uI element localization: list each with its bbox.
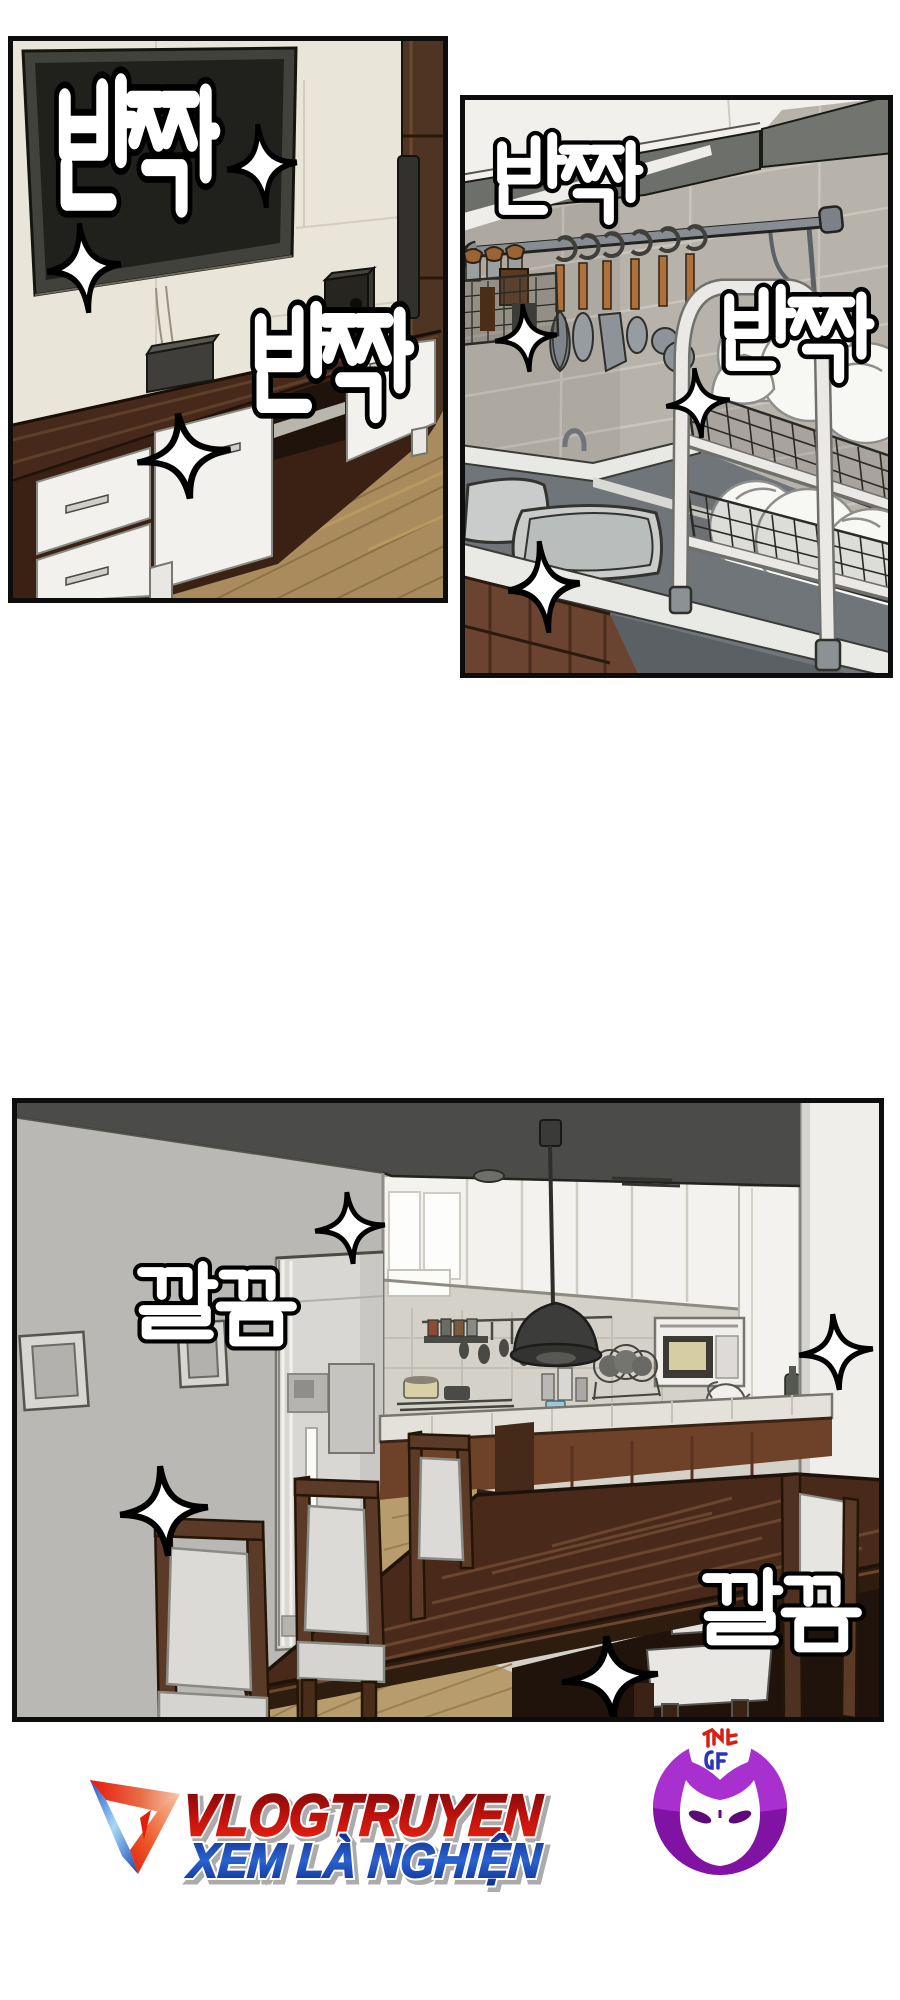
svg-text:XEM LÀ NGHIỆN: XEM LÀ NGHIỆN: [184, 1833, 544, 1888]
